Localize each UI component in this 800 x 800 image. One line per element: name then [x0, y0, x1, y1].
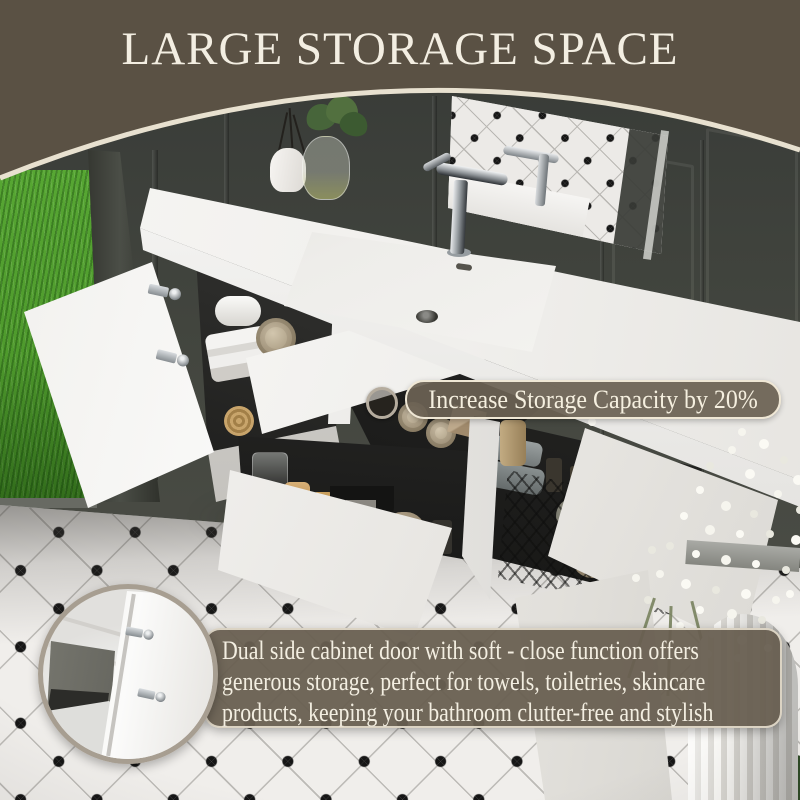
detail-inset-circle [38, 584, 218, 764]
hinge-cup [154, 691, 166, 703]
page-title: LARGE STORAGE SPACE [0, 22, 800, 76]
description-line: Dual side cabinet door with soft - close… [222, 635, 691, 666]
ring-marker-icon [366, 387, 398, 419]
storage-capacity-badge-label: Increase Storage Capacity by 20% [428, 385, 757, 415]
hinge-plate [137, 688, 155, 700]
product-marketing-image: LARGE STORAGE SPACE Increase Storage Cap… [0, 0, 800, 800]
description-line: products, keeping your bathroom clutter-… [222, 697, 691, 728]
description-line: generous storage, perfect for towels, to… [222, 666, 691, 697]
storage-capacity-badge: Increase Storage Capacity by 20% [405, 380, 781, 419]
hinge-plate [125, 626, 143, 637]
hinge-cup [143, 629, 155, 641]
description-box: Dual side cabinet door with soft - close… [204, 628, 782, 728]
